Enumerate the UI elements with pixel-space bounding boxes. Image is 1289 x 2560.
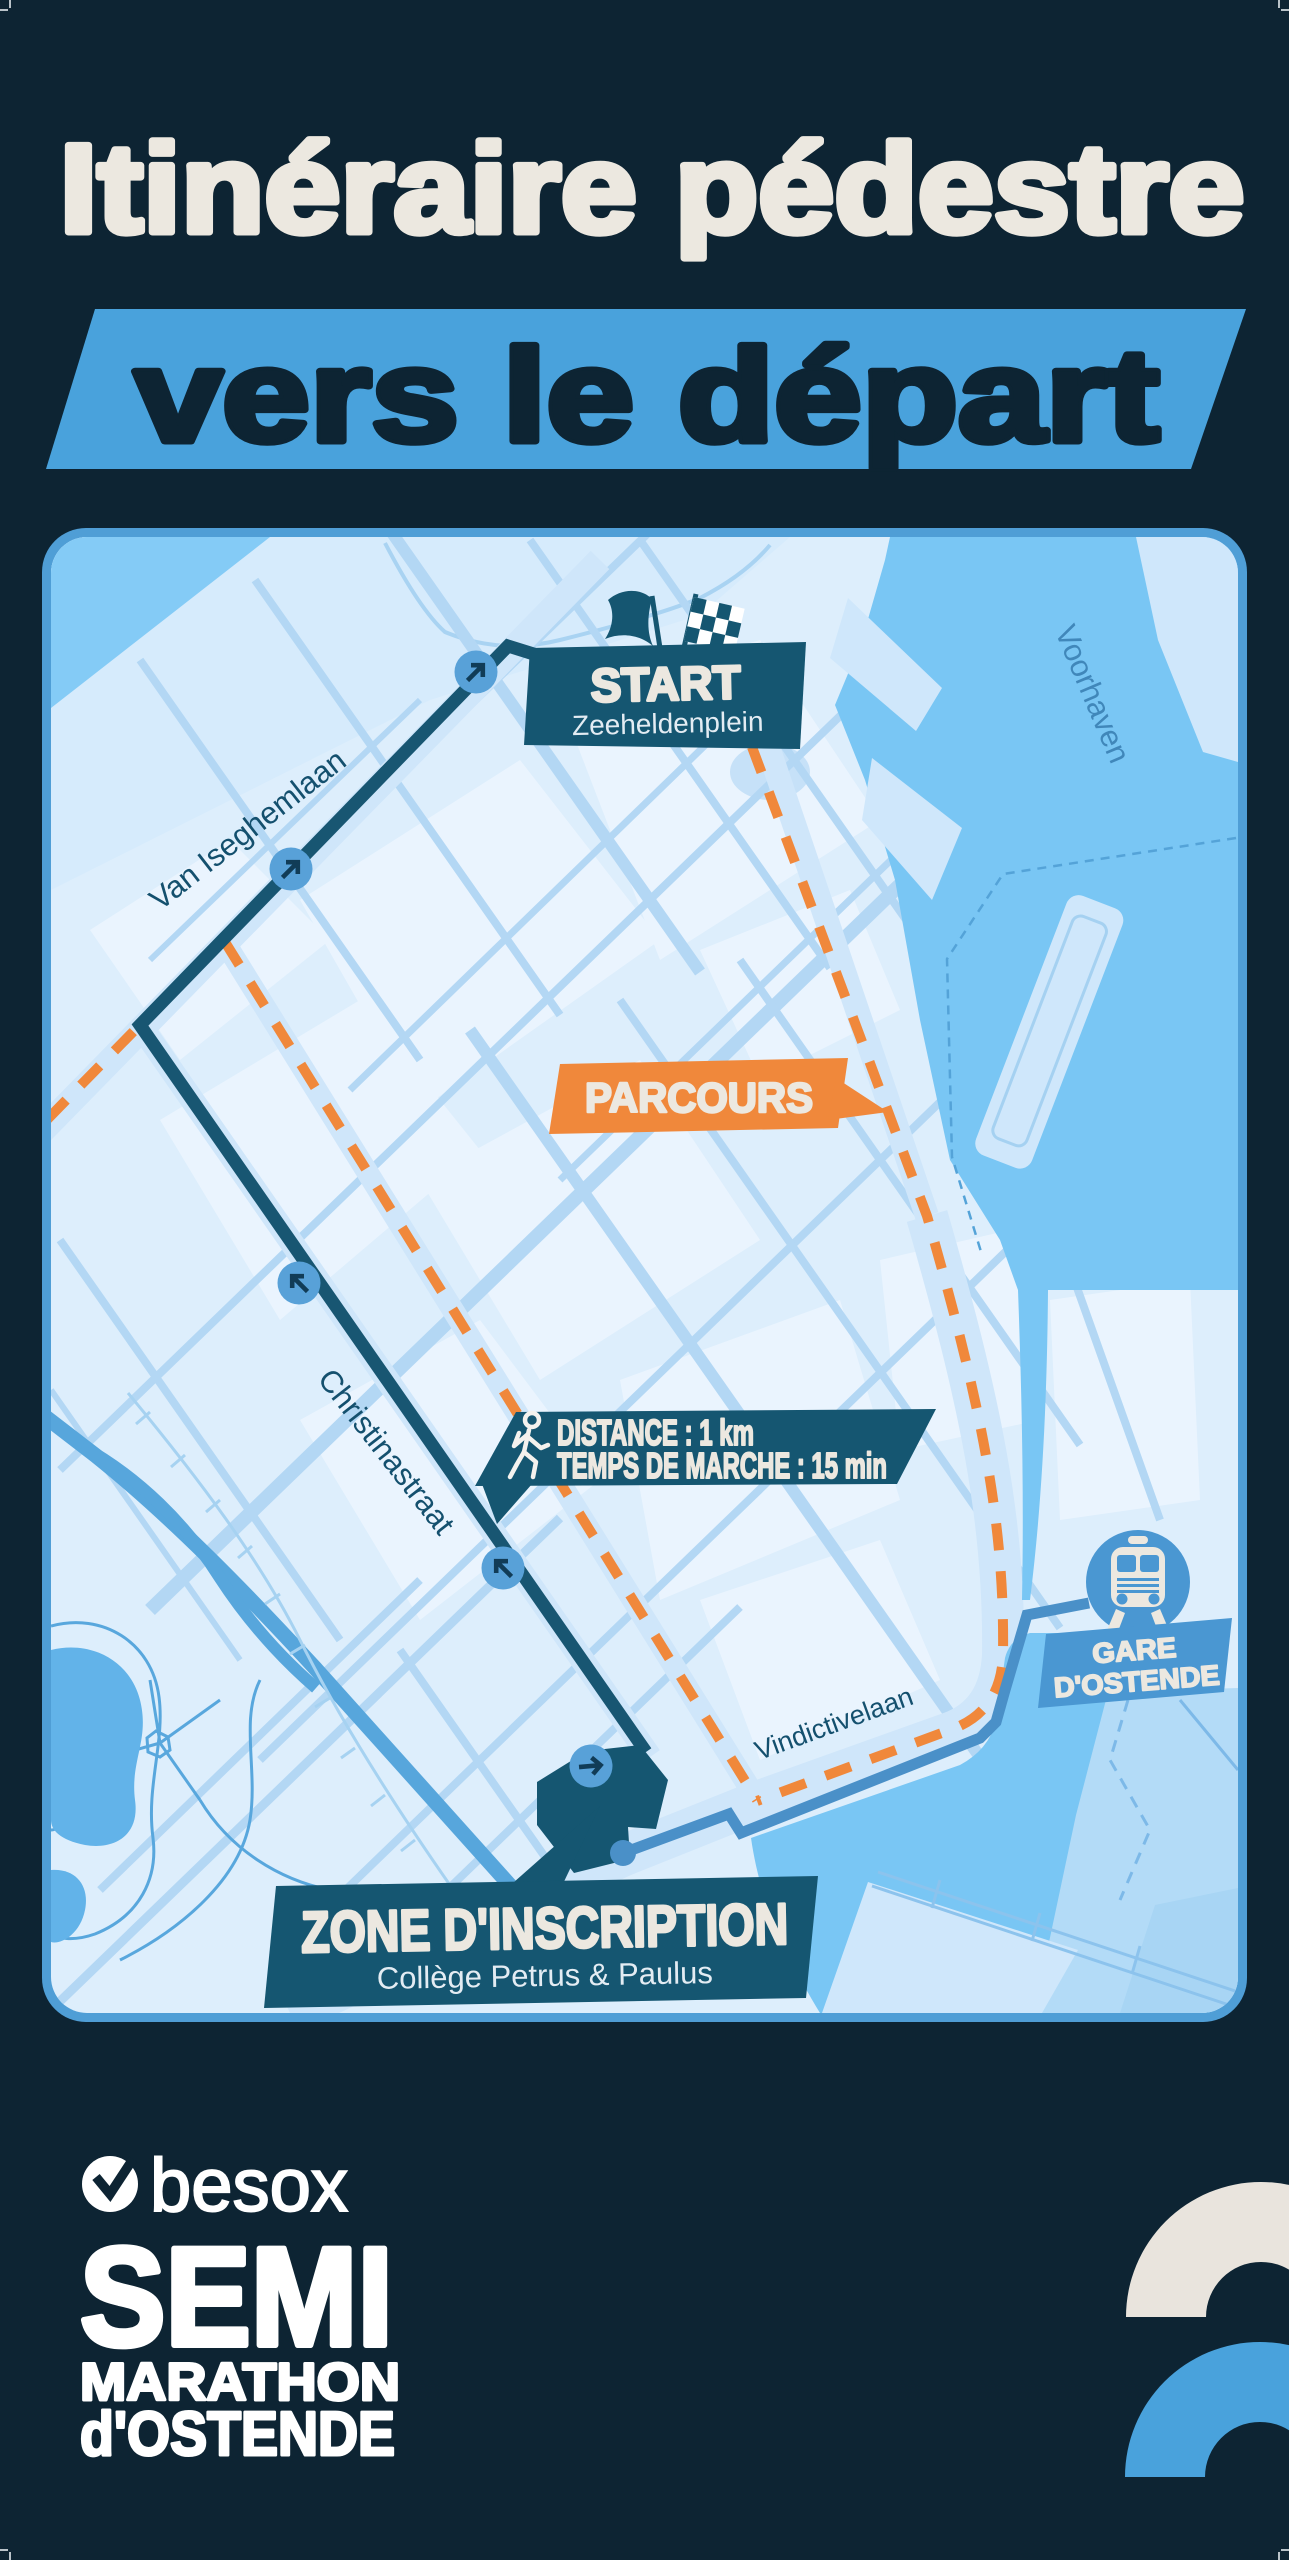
svg-text:Itinéraire pédestre: Itinéraire pédestre: [60, 118, 1245, 259]
svg-text:TEMPS DE MARCHE : 15 min: TEMPS DE MARCHE : 15 min: [557, 1445, 887, 1486]
svg-text:ZONE D'INSCRIPTION: ZONE D'INSCRIPTION: [301, 1892, 789, 1965]
svg-text:vers le départ: vers le départ: [135, 322, 1160, 469]
svg-text:START: START: [590, 655, 741, 711]
svg-text:Collège Petrus & Paulus: Collège Petrus & Paulus: [377, 1955, 714, 1996]
svg-text:SEMI: SEMI: [80, 2218, 393, 2375]
svg-text:besox: besox: [150, 2143, 348, 2227]
svg-text:PARCOURS: PARCOURS: [585, 1074, 813, 1121]
svg-text:d'OSTENDE: d'OSTENDE: [80, 2400, 395, 2469]
svg-text:Zeeheldenplein: Zeeheldenplein: [572, 706, 764, 741]
